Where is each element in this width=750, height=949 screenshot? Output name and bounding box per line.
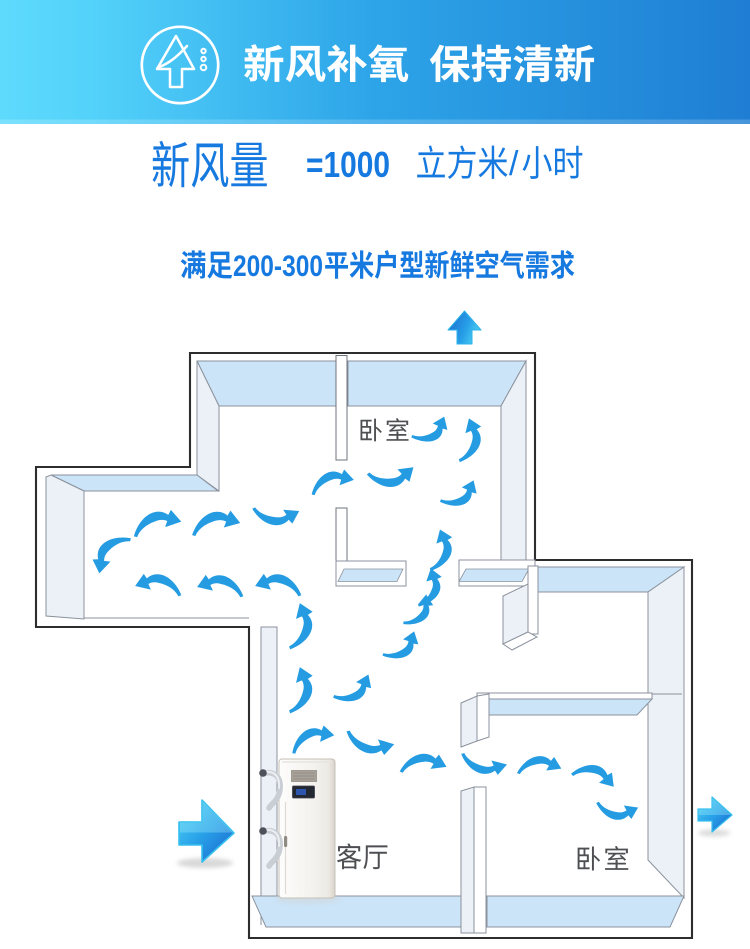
- svg-text:200-300: 200-300: [233, 250, 323, 283]
- svg-text:/: /: [509, 145, 519, 183]
- svg-text:=1000: =1000: [306, 144, 390, 185]
